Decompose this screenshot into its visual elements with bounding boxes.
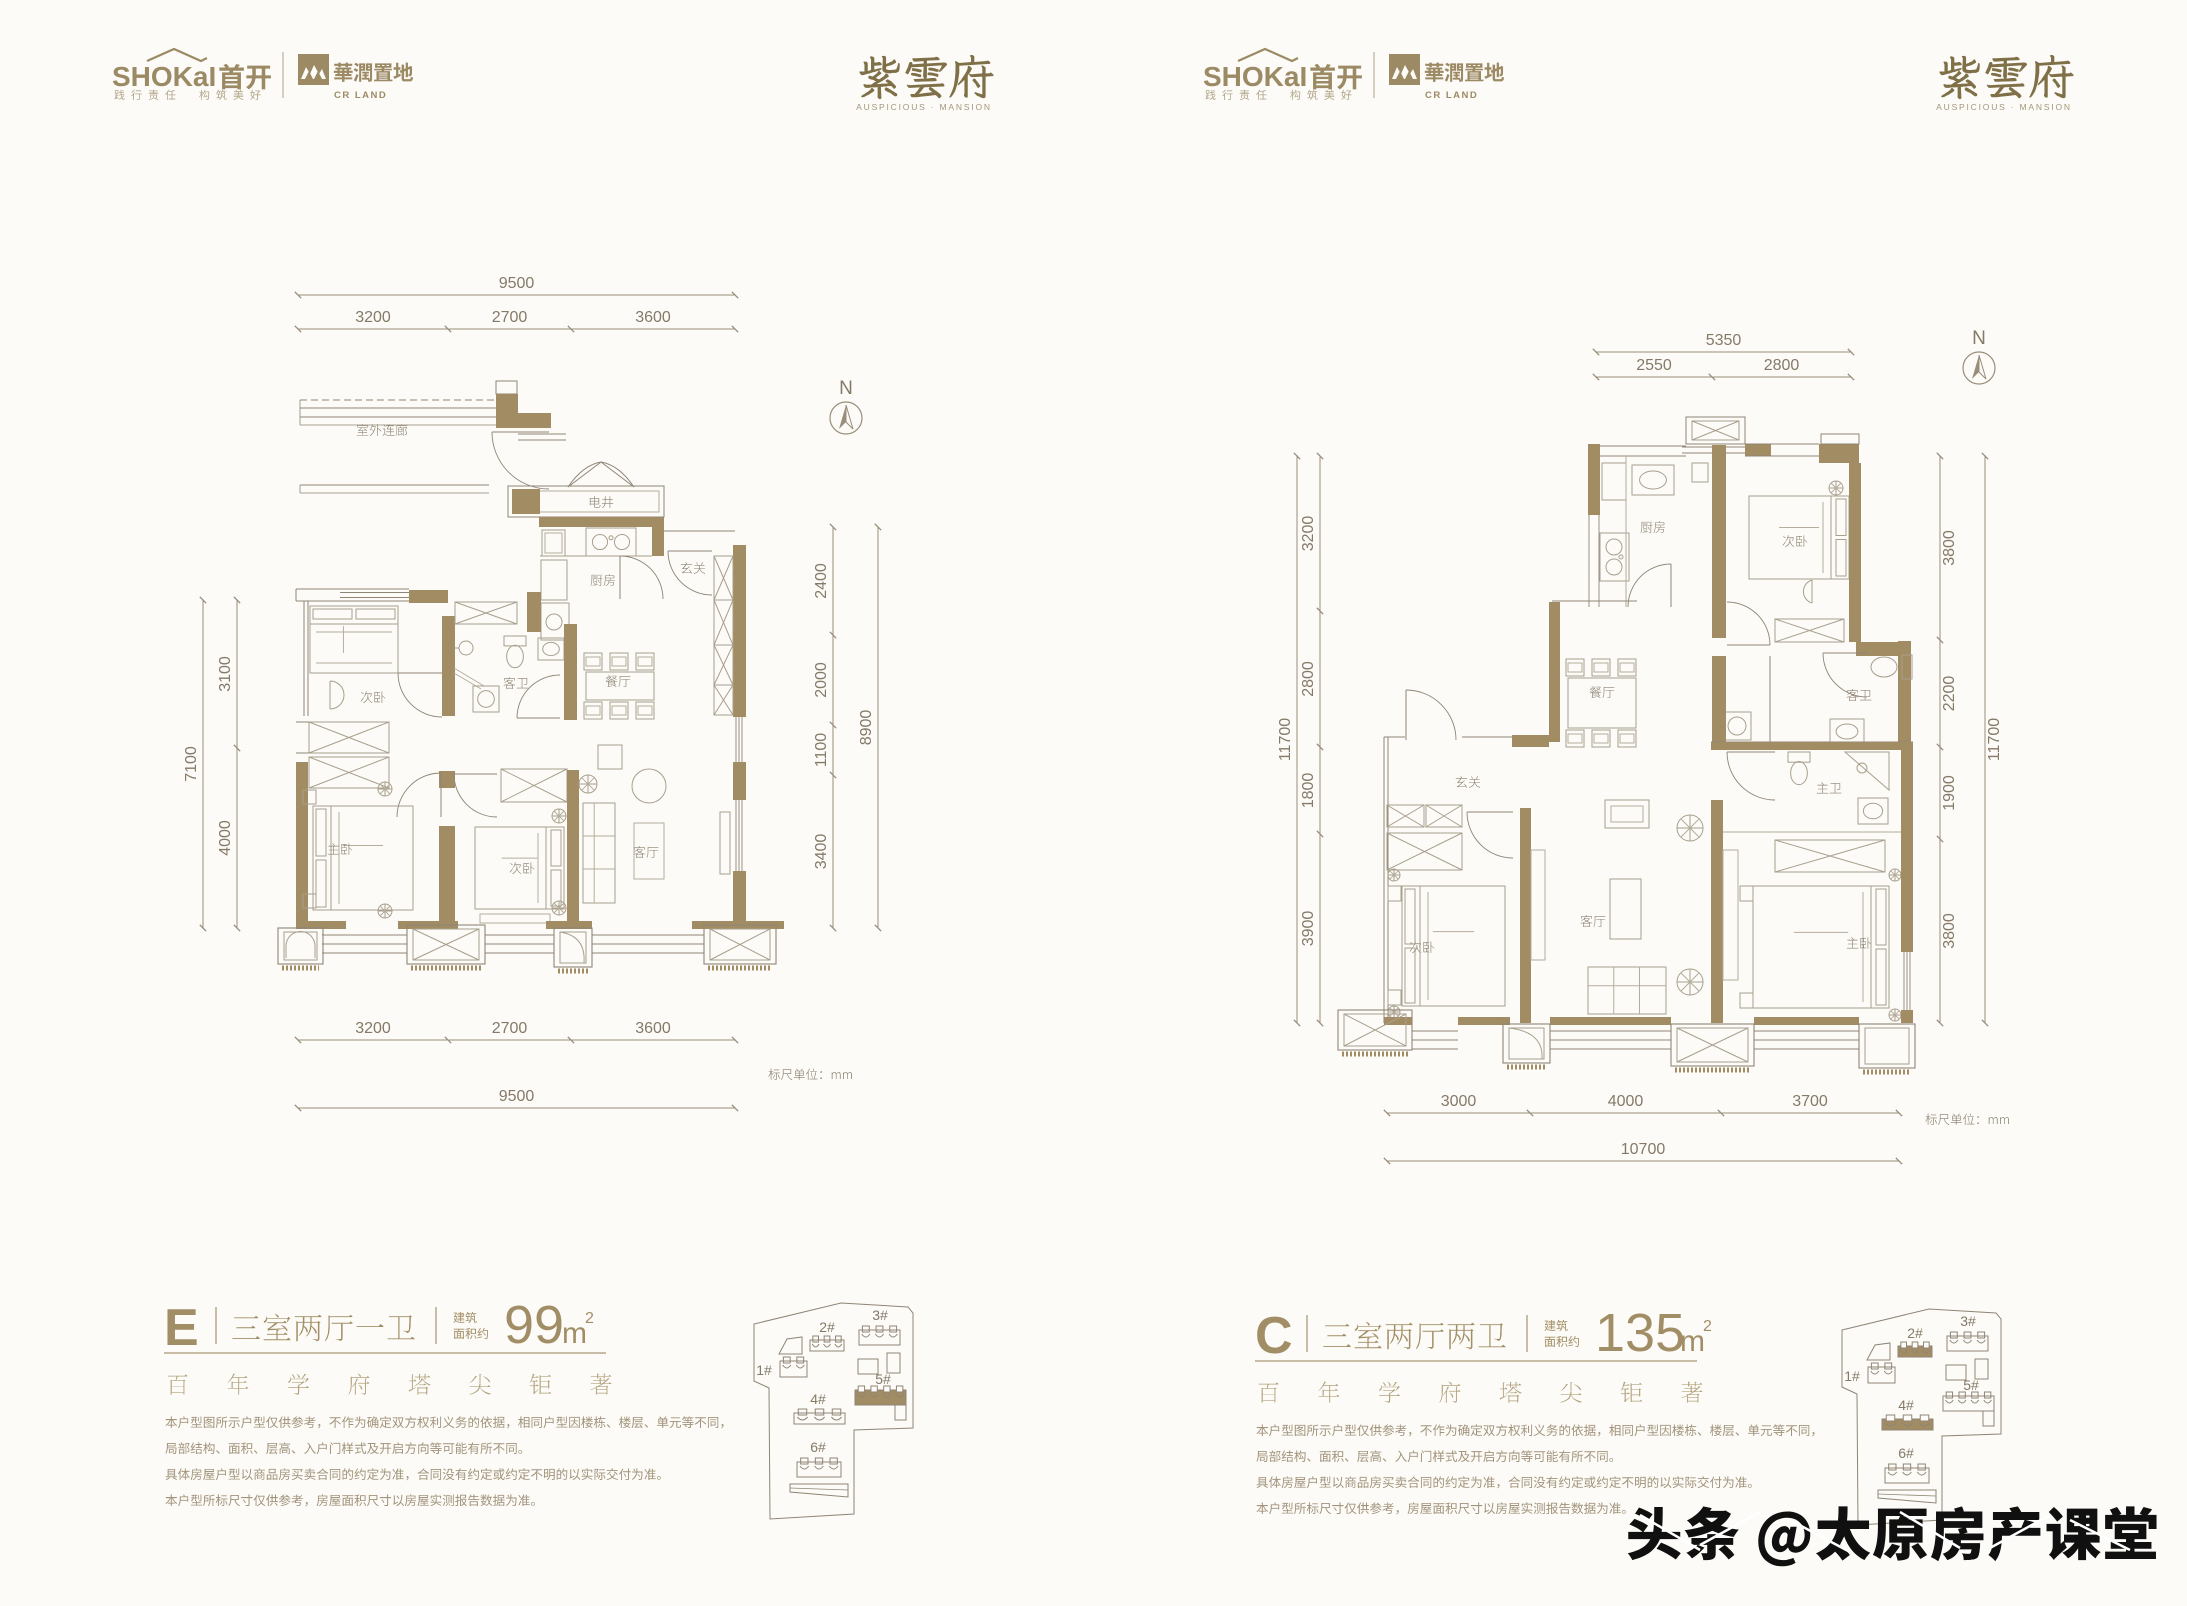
svg-text:SHOKaI: SHOKaI: [112, 61, 216, 92]
svg-text:2: 2: [585, 1310, 594, 1327]
svg-text:2800: 2800: [1764, 357, 1800, 374]
svg-text:E: E: [164, 1299, 199, 1357]
svg-text:3000: 3000: [1441, 1093, 1477, 1110]
svg-text:2700: 2700: [492, 309, 528, 326]
svg-text:6#: 6#: [810, 1439, 826, 1455]
svg-text:9500: 9500: [499, 1088, 535, 1105]
svg-text:7100: 7100: [183, 746, 200, 782]
svg-text:4#: 4#: [810, 1391, 826, 1407]
svg-text:CR LAND: CR LAND: [334, 90, 387, 101]
svg-text:11700: 11700: [1277, 718, 1294, 761]
svg-text:CR LAND: CR LAND: [1425, 90, 1478, 101]
svg-text:3900: 3900: [1300, 911, 1317, 947]
svg-text:2#: 2#: [1907, 1325, 1923, 1341]
svg-text:2000: 2000: [813, 662, 830, 698]
svg-text:3100: 3100: [217, 656, 234, 692]
svg-text:5350: 5350: [1706, 332, 1742, 349]
svg-text:11700: 11700: [1986, 718, 2003, 761]
svg-text:1900: 1900: [1941, 775, 1958, 811]
svg-text:5#: 5#: [1963, 1377, 1979, 1393]
svg-text:6#: 6#: [1898, 1445, 1914, 1461]
svg-text:4#: 4#: [1898, 1397, 1914, 1413]
svg-text:3200: 3200: [355, 1020, 391, 1037]
svg-text:3200: 3200: [1300, 516, 1317, 552]
svg-text:2550: 2550: [1636, 357, 1672, 374]
svg-text:SHOKaI: SHOKaI: [1203, 61, 1307, 92]
svg-text:1#: 1#: [756, 1362, 772, 1378]
svg-text:m: m: [1680, 1325, 1705, 1358]
svg-text:99: 99: [504, 1295, 564, 1355]
svg-text:135: 135: [1595, 1303, 1685, 1363]
svg-text:2#: 2#: [819, 1319, 835, 1335]
svg-text:1100: 1100: [813, 733, 830, 768]
svg-text:2400: 2400: [813, 563, 830, 599]
svg-text:3600: 3600: [635, 1020, 671, 1037]
svg-text:2800: 2800: [1300, 661, 1317, 697]
svg-text:AUSPICIOUS · MANSION: AUSPICIOUS · MANSION: [1936, 102, 2072, 112]
svg-text:2200: 2200: [1941, 676, 1958, 712]
svg-text:1#: 1#: [1844, 1368, 1860, 1384]
svg-text:3200: 3200: [355, 309, 391, 326]
svg-text:3700: 3700: [1792, 1093, 1828, 1110]
svg-text:N: N: [1972, 328, 1986, 349]
svg-text:m: m: [562, 1317, 587, 1350]
svg-text:3800: 3800: [1941, 913, 1958, 949]
svg-text:9500: 9500: [499, 275, 535, 292]
svg-text:3600: 3600: [635, 309, 671, 326]
svg-text:3800: 3800: [1941, 530, 1958, 566]
svg-text:4000: 4000: [1608, 1093, 1644, 1110]
svg-text:8900: 8900: [858, 710, 875, 746]
svg-text:2: 2: [1703, 1318, 1712, 1335]
svg-text:4000: 4000: [217, 820, 234, 856]
svg-text:2700: 2700: [492, 1020, 528, 1037]
svg-text:AUSPICIOUS · MANSION: AUSPICIOUS · MANSION: [856, 102, 992, 112]
svg-text:1800: 1800: [1300, 773, 1317, 809]
svg-text:3#: 3#: [1960, 1313, 1976, 1329]
svg-text:C: C: [1255, 1307, 1293, 1365]
svg-text:10700: 10700: [1621, 1141, 1666, 1158]
svg-text:5#: 5#: [875, 1371, 891, 1387]
svg-text:3#: 3#: [872, 1307, 888, 1323]
svg-text:3400: 3400: [813, 834, 830, 870]
svg-text:N: N: [839, 378, 853, 399]
